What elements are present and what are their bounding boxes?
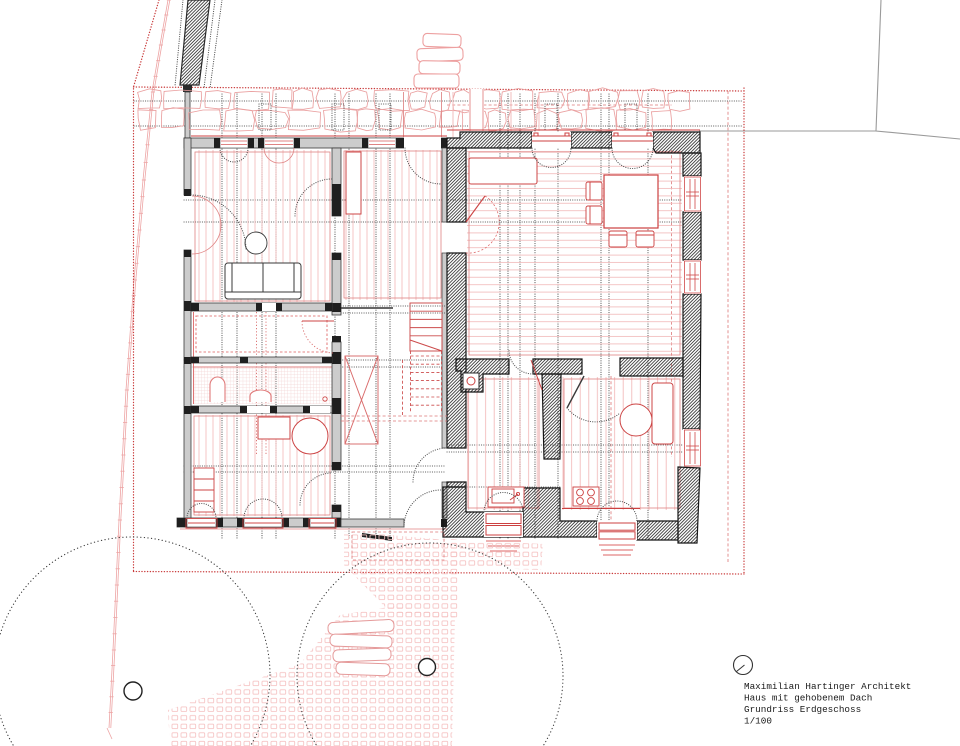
- svg-text:Maximilian Hartinger Architekt: Maximilian Hartinger Architekt: [744, 681, 911, 692]
- svg-text:Haus mit gehobenem Dach: Haus mit gehobenem Dach: [744, 693, 872, 704]
- svg-text:1/100: 1/100: [744, 716, 772, 727]
- svg-text:Grundriss Erdgeschoss: Grundriss Erdgeschoss: [744, 704, 861, 715]
